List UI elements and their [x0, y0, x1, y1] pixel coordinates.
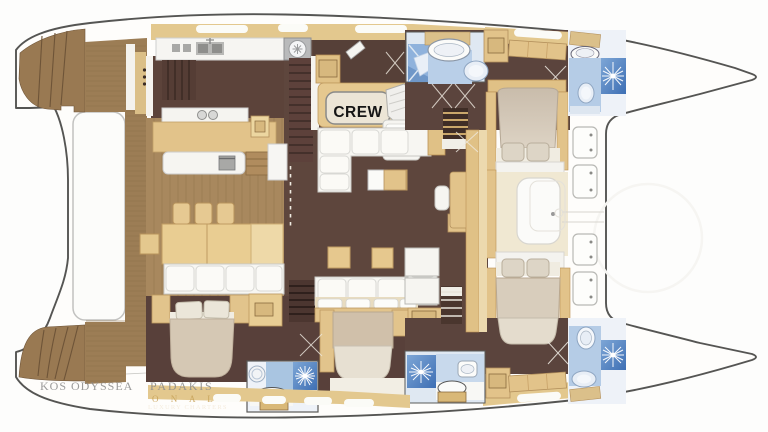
svg-text:CREW: CREW [333, 104, 382, 121]
svg-text:KOS ODYSSEA: KOS ODYSSEA [40, 379, 133, 393]
svg-text:O N A L: O N A L [152, 394, 218, 404]
svg-text:LUXURY CHARTERS: LUXURY CHARTERS [148, 404, 228, 411]
svg-text:PADAKIS: PADAKIS [150, 379, 214, 393]
